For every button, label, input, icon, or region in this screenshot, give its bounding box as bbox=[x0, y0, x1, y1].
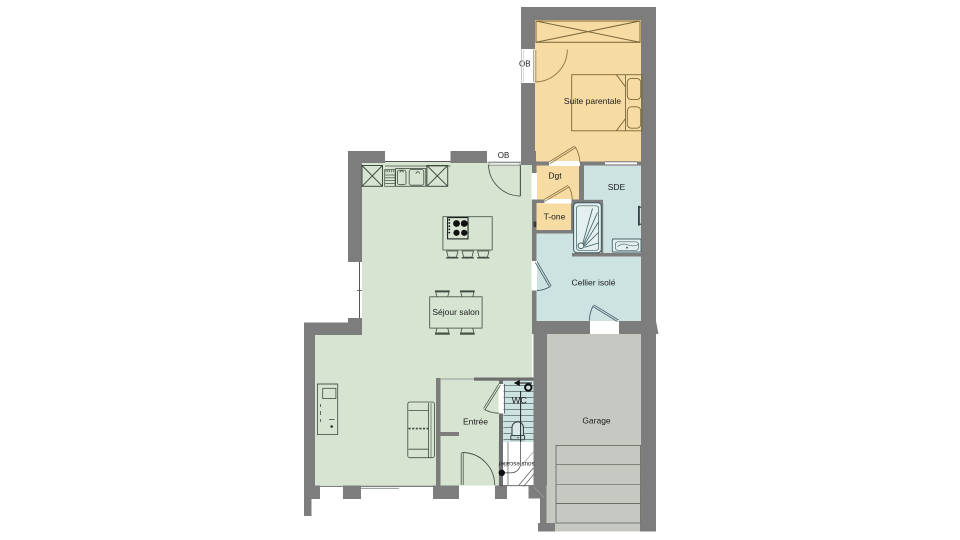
svg-text:Garage: Garage bbox=[582, 416, 611, 426]
svg-text:OB: OB bbox=[519, 60, 531, 69]
svg-text:Séjour salon: Séjour salon bbox=[432, 307, 480, 317]
svg-text:SDE: SDE bbox=[608, 182, 626, 192]
svg-text:T-one: T-one bbox=[544, 212, 566, 222]
svg-text:OB: OB bbox=[498, 151, 510, 160]
svg-text:Entrée: Entrée bbox=[463, 417, 488, 427]
svg-text:Cellier isolé: Cellier isolé bbox=[572, 278, 616, 288]
svg-text:Dgt: Dgt bbox=[548, 171, 562, 181]
svg-text:sous escalier: sous escalier bbox=[498, 460, 534, 467]
svg-text:WC: WC bbox=[512, 396, 528, 406]
svg-text:Suite parentale: Suite parentale bbox=[564, 96, 621, 106]
